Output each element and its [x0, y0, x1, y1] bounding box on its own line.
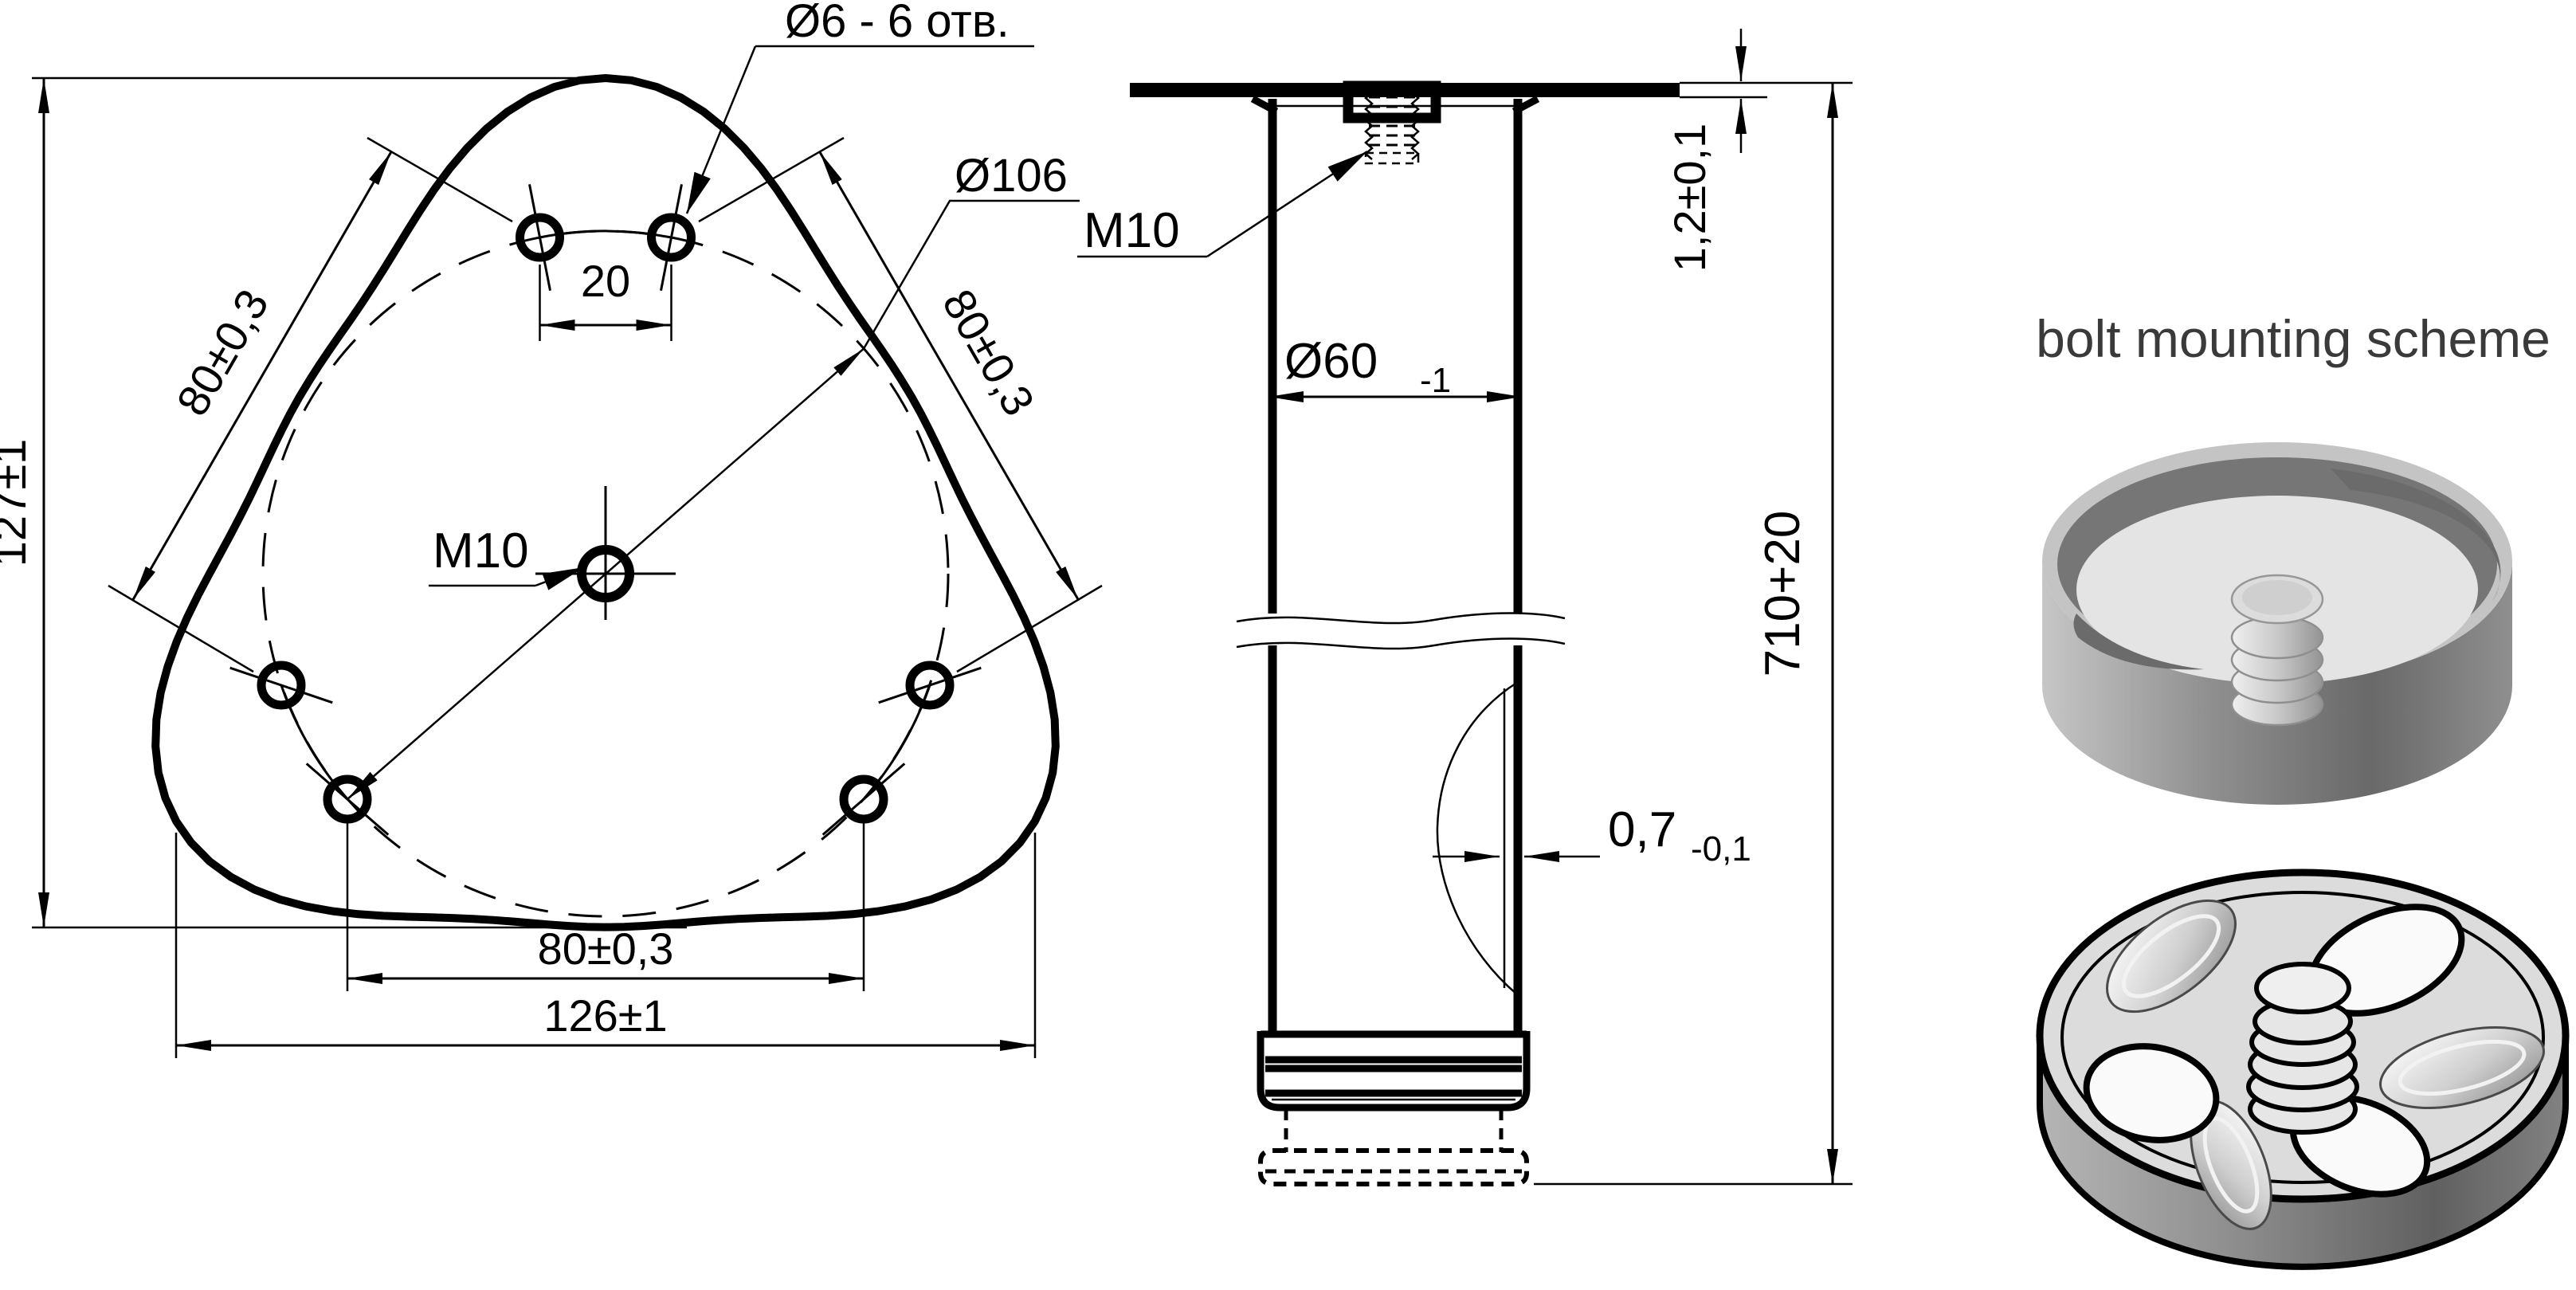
dim-length: 710+20 — [1755, 511, 1810, 677]
broken-out-boundary — [1437, 682, 1518, 994]
dim-spacing-bottom: 80±0,3 — [538, 923, 674, 974]
dim-wall-thickness-tol: -0,1 — [1691, 829, 1751, 868]
callout-thread-side: M10 — [1084, 203, 1180, 258]
render-cap-bottom — [2040, 872, 2566, 1267]
render-cup-top — [2042, 442, 2512, 805]
ext-80L-b — [108, 586, 253, 672]
ext-80R-a — [699, 138, 844, 222]
drawing-sheet: 127±1 80±0,3 80±0,3 20 Ø106 M10 Ø6 - 6 о… — [0, 0, 2576, 1290]
dim-bolt-circle: Ø106 — [955, 150, 1068, 202]
leader-holes — [687, 46, 755, 214]
dim-overall-width: 126±1 — [543, 990, 667, 1041]
foot-hidden — [1261, 1109, 1527, 1184]
dim-outer-diameter-tol: -1 — [1420, 361, 1451, 400]
leader-m10-plan — [535, 567, 584, 586]
foot-collar — [1261, 1031, 1527, 1108]
dim-pair-spacing: 20 — [581, 256, 630, 306]
dim-spacing-left: 80±0,3 — [167, 281, 278, 424]
side-view: M10 Ø60 -1 0,7 -0,1 1,2±0,1 710+20 — [1077, 29, 1853, 1184]
dim-plate-thickness: 1,2±0,1 — [1664, 124, 1715, 272]
ext-80L-a — [367, 138, 512, 222]
stud-end-hidden — [1366, 153, 1418, 163]
leader-m10-side — [1207, 151, 1367, 257]
callout-center-thread: M10 — [433, 523, 529, 578]
dim-wall-thickness: 0,7 — [1608, 802, 1676, 857]
plan-view: 127±1 80±0,3 80±0,3 20 Ø106 M10 Ø6 - 6 о… — [0, 0, 1102, 1058]
dim-overall-height: 127±1 — [0, 439, 36, 567]
stud-render-2 — [2249, 964, 2357, 1132]
scheme-title: bolt mounting scheme — [2036, 309, 2551, 368]
dim-spacing-right: 80±0,3 — [933, 281, 1045, 424]
dim-outer-diameter: Ø60 — [1284, 334, 1378, 389]
stud-render-1 — [2232, 575, 2323, 725]
dimline-106 — [347, 349, 864, 799]
dimline-80R — [820, 152, 1079, 600]
scheme-3d: bolt mounting scheme — [2036, 309, 2566, 1267]
dimline-80L — [133, 152, 391, 600]
weld-nut — [1348, 86, 1436, 118]
technical-drawing: 127±1 80±0,3 80±0,3 20 Ø106 M10 Ø6 - 6 о… — [0, 0, 2576, 1290]
ext-80R-b — [957, 586, 1102, 672]
callout-holes: Ø6 - 6 отв. — [785, 0, 1010, 47]
